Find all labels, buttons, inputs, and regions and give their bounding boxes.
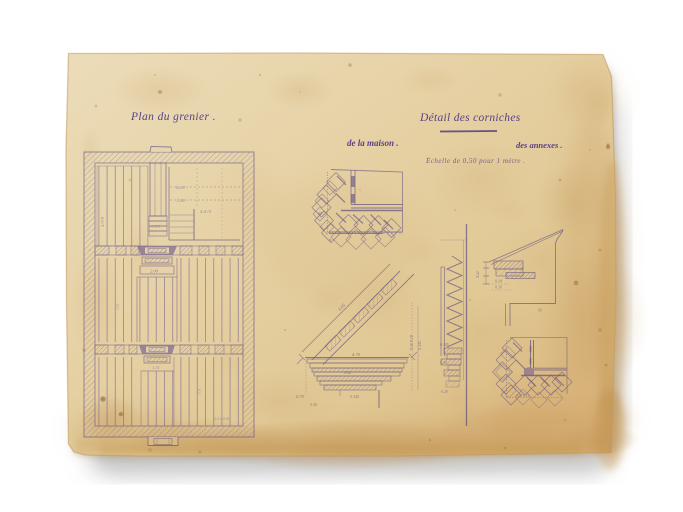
svg-text:0.14: 0.14 — [495, 279, 502, 284]
svg-text:0.345: 0.345 — [440, 343, 449, 347]
svg-text:Échelle de 0,50 pour 1 mètre .: Échelle de 0,50 pour 1 mètre . — [425, 157, 526, 165]
svg-text:4.470: 4.470 — [200, 210, 212, 215]
svg-text:2.2 x 0.41: 2.2 x 0.41 — [214, 416, 230, 421]
svg-text:0.16: 0.16 — [495, 285, 502, 290]
svg-text:6.10: 6.10 — [176, 186, 185, 191]
svg-text:4.970: 4.970 — [100, 216, 105, 227]
svg-text:0.36 0.10: 0.36 0.10 — [409, 335, 414, 350]
svg-text:0.30: 0.30 — [440, 361, 447, 365]
svg-text:des annexes .: des annexes . — [516, 140, 563, 150]
svg-text:0.70: 0.70 — [296, 394, 305, 399]
svg-text:M: M — [317, 211, 322, 216]
svg-text:7.30: 7.30 — [176, 199, 185, 204]
svg-text:0.345: 0.345 — [350, 394, 359, 399]
svg-text:0.10 0.15: 0.10 0.15 — [516, 394, 530, 398]
svg-text:2.00: 2.00 — [150, 269, 159, 274]
svg-text:0.22: 0.22 — [476, 271, 480, 278]
svg-text:0.28: 0.28 — [441, 390, 448, 394]
svg-text:0.42: 0.42 — [344, 370, 351, 375]
svg-text:0.345: 0.345 — [417, 341, 422, 350]
svg-text:4.70: 4.70 — [352, 352, 361, 357]
svg-text:Plan du grenier .: Plan du grenier . — [130, 111, 216, 123]
svg-text:Détail des corniches: Détail des corniches — [419, 112, 521, 124]
svg-text:0.56: 0.56 — [310, 402, 317, 407]
svg-text:4.470: 4.470 — [151, 224, 160, 229]
svg-text:de la maison .: de la maison . — [347, 138, 399, 148]
svg-text:1.31: 1.31 — [152, 365, 160, 370]
